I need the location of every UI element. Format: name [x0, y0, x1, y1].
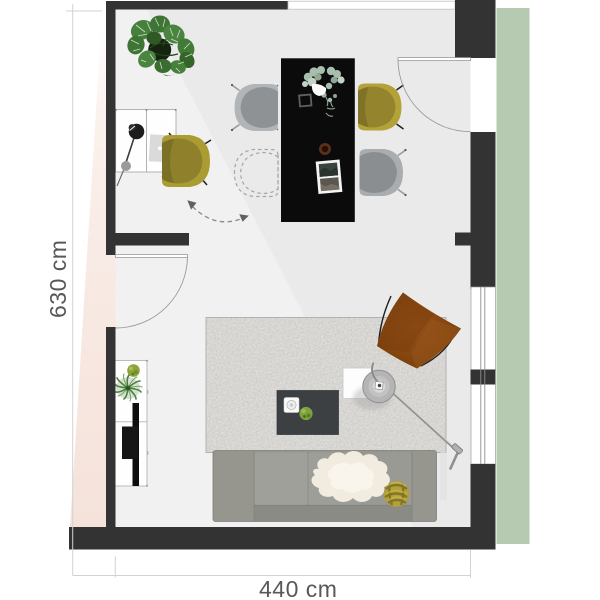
svg-text:440 cm: 440 cm: [259, 576, 337, 600]
svg-text:630 cm: 630 cm: [45, 240, 71, 318]
